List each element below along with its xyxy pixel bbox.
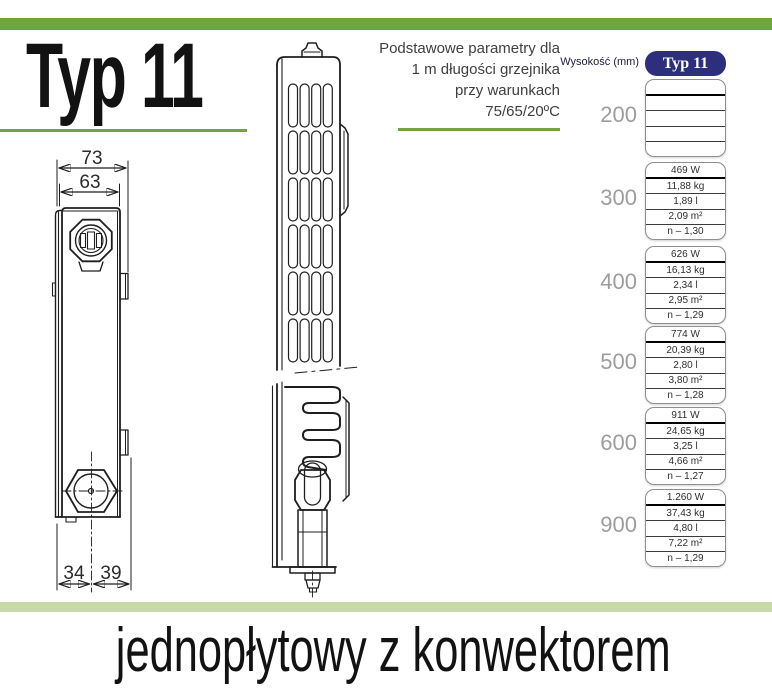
radiator-front-view-drawing bbox=[260, 28, 362, 606]
spec-cell bbox=[646, 142, 725, 156]
spec-cell bbox=[646, 127, 725, 142]
spec-cell: 24,65 kg bbox=[646, 424, 725, 439]
row-label-500: 500 bbox=[561, 351, 637, 373]
spec-cell: 911 W bbox=[646, 408, 725, 424]
spec-cell: 774 W bbox=[646, 327, 725, 343]
row-label-300: 300 bbox=[561, 187, 637, 209]
spec-cell: 2,34 l bbox=[646, 278, 725, 293]
spec-cell: n – 1,27 bbox=[646, 470, 725, 484]
parameters-underline bbox=[398, 128, 560, 131]
spec-cell: 7,22 m² bbox=[646, 537, 725, 552]
spec-cell: 1,89 l bbox=[646, 194, 725, 209]
spec-block-300: 469 W11,88 kg1,89 l2,09 m²n – 1,30 bbox=[645, 162, 726, 240]
radiator-side-view-drawing: 73 63 bbox=[25, 138, 205, 603]
row-label-200: 200 bbox=[561, 104, 637, 126]
title-underline bbox=[0, 129, 247, 132]
spec-cell: 626 W bbox=[646, 247, 725, 263]
spec-cell bbox=[646, 111, 725, 126]
spec-cell: 20,39 kg bbox=[646, 343, 725, 358]
spec-block-500: 774 W20,39 kg2,80 l3,80 m²n – 1,28 bbox=[645, 326, 726, 404]
spec-cell: n – 1,28 bbox=[646, 389, 725, 403]
spec-cell: 2,80 l bbox=[646, 358, 725, 373]
spec-cell bbox=[646, 96, 725, 111]
spec-cell: 469 W bbox=[646, 163, 725, 179]
spec-cell: n – 1,29 bbox=[646, 552, 725, 566]
spec-sheet: Typ 11 Podstawowe parametry dla 1 m dług… bbox=[0, 0, 772, 699]
spec-cell: n – 1,30 bbox=[646, 225, 725, 239]
spec-cell: 37,43 kg bbox=[646, 506, 725, 521]
spec-cell: 11,88 kg bbox=[646, 179, 725, 194]
dim-73-label: 73 bbox=[81, 148, 102, 169]
table-row-header: Wysokość (mm) bbox=[545, 56, 639, 68]
dim-63-label: 63 bbox=[79, 172, 100, 193]
spec-cell bbox=[646, 80, 725, 96]
row-label-600: 600 bbox=[561, 432, 637, 454]
spec-cell: 4,80 l bbox=[646, 521, 725, 536]
spec-cell: 1.260 W bbox=[646, 490, 725, 506]
page-title: Typ 11 bbox=[26, 30, 203, 122]
row-label-900: 900 bbox=[561, 514, 637, 536]
footer-caption: jednopłytowy z konwektorem bbox=[116, 603, 656, 699]
spec-block-900: 1.260 W37,43 kg4,80 l7,22 m²n – 1,29 bbox=[645, 489, 726, 567]
spec-block-200 bbox=[645, 79, 726, 157]
spec-cell: 2,95 m² bbox=[646, 294, 725, 309]
spec-cell: 2,09 m² bbox=[646, 210, 725, 225]
row-label-400: 400 bbox=[561, 271, 637, 293]
spec-cell: 16,13 kg bbox=[646, 263, 725, 278]
spec-cell: n – 1,29 bbox=[646, 309, 725, 323]
dim-39-label: 39 bbox=[100, 563, 121, 584]
spec-cell: 3,80 m² bbox=[646, 374, 725, 389]
table-column-header: Typ 11 bbox=[645, 51, 726, 76]
spec-block-600: 911 W24,65 kg3,25 l4,66 m²n – 1,27 bbox=[645, 407, 726, 485]
dim-34-label: 34 bbox=[63, 563, 85, 584]
spec-cell: 3,25 l bbox=[646, 439, 725, 454]
spec-block-400: 626 W16,13 kg2,34 l2,95 m²n – 1,29 bbox=[645, 246, 726, 324]
convector-grille bbox=[289, 84, 333, 362]
spec-cell: 4,66 m² bbox=[646, 455, 725, 470]
